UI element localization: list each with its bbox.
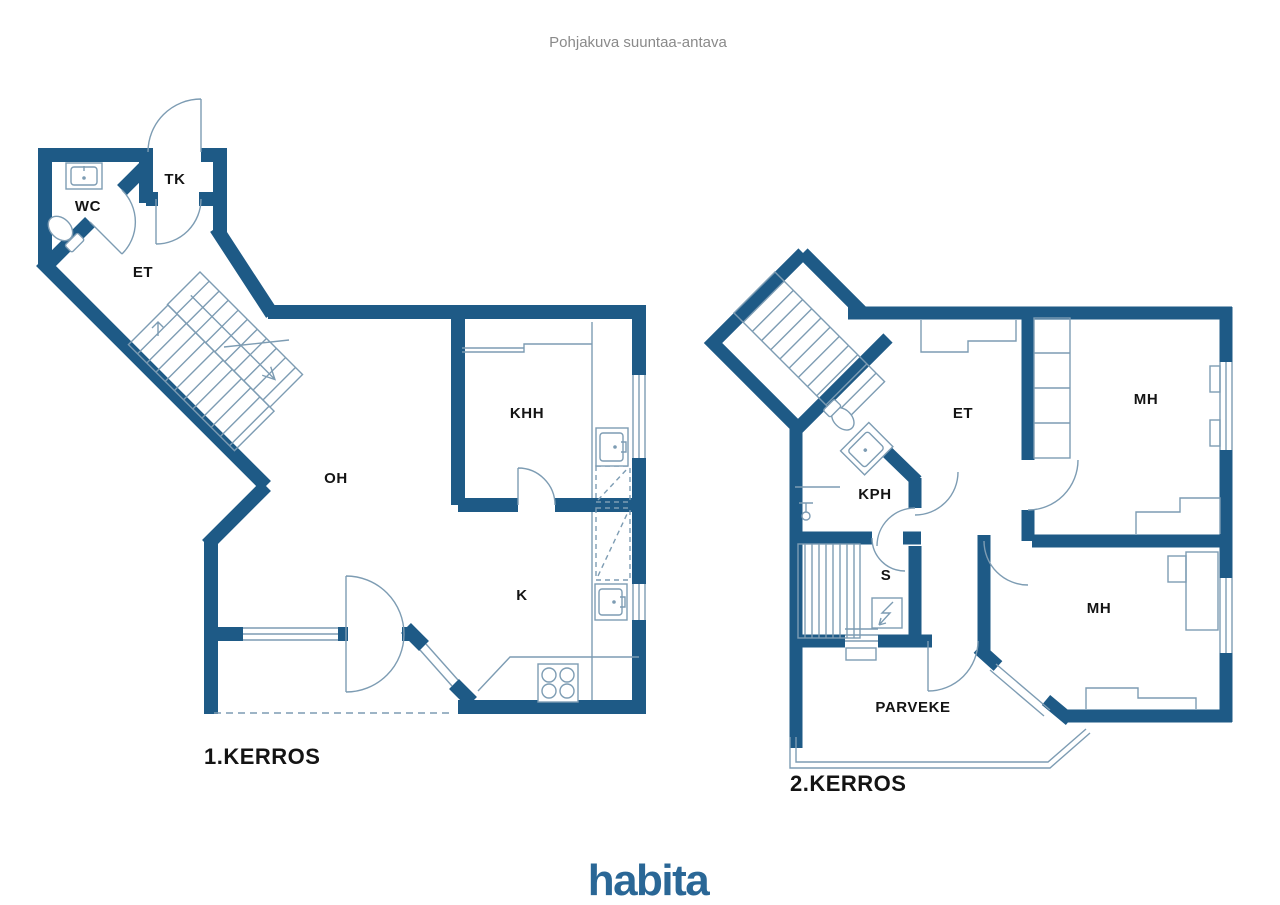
room-label-parveke: PARVEKE (875, 699, 950, 716)
room-label-k: K (516, 587, 527, 604)
mh-top-closet (1034, 318, 1070, 458)
room-label-oh: OH (324, 470, 348, 487)
floor2-stairwell-walls (713, 253, 888, 428)
room-label-mh-top: MH (1134, 391, 1159, 408)
window (1220, 578, 1232, 653)
khh-sink-icon (596, 428, 628, 466)
mh-top-door-arc (1028, 460, 1078, 510)
mh-bottom-closet (1168, 552, 1218, 630)
stairs-floor1 (128, 272, 302, 451)
room-label-khh: KHH (510, 405, 544, 422)
balcony-door-arc (928, 641, 978, 691)
room-label-tk: TK (164, 171, 185, 188)
habita-logo: habita (588, 856, 711, 905)
floorplan-page: Pohjakuva suuntaa-antava (0, 0, 1280, 905)
tk-inner-door-arc (156, 199, 201, 244)
plan-disclaimer-title: Pohjakuva suuntaa-antava (549, 34, 727, 51)
room-label-et-2: ET (953, 405, 973, 422)
floor2-plan: ET MH KPH S MH PARVEKE 2.KERROS (713, 253, 1232, 796)
mh-bottom-door-arc (984, 541, 1028, 585)
floor1-plan: TK WC ET OH KHH K 1.KERROS (38, 99, 646, 769)
floor1-doors (90, 99, 555, 692)
et-shelf (921, 320, 1016, 352)
window (1220, 362, 1232, 450)
window-diagonal (420, 644, 458, 686)
stove-icon (538, 664, 578, 702)
mh-bottom-shelf (1086, 688, 1196, 709)
floor1-label: 1.KERROS (204, 744, 320, 769)
room-label-et-1: ET (133, 264, 153, 281)
floorplan-canvas: Pohjakuva suuntaa-antava (0, 0, 1280, 905)
khh-door-arc (518, 468, 555, 505)
floor1-walls (38, 148, 646, 714)
mh-top-shelf (1136, 498, 1220, 534)
window (633, 584, 645, 620)
sauna-window (845, 629, 878, 641)
sauna-heater-icon (872, 598, 902, 628)
sauna-benches (798, 544, 860, 638)
room-label-s: S (881, 567, 892, 584)
window (243, 628, 338, 640)
window-diagonal (990, 664, 1050, 716)
kitchen-sink-icon (595, 584, 627, 620)
entry-door-arc (148, 99, 201, 152)
balcony-railing (790, 729, 1090, 768)
floor2-doors (872, 460, 1078, 691)
floor1-windows (214, 375, 645, 713)
room-label-mh-bottom: MH (1087, 600, 1112, 617)
room-label-wc: WC (75, 198, 101, 215)
wc-sink-icon (66, 163, 102, 189)
terrace-double-door-arc (346, 576, 404, 692)
floor2-label: 2.KERROS (790, 771, 906, 796)
room-label-kph: KPH (858, 486, 891, 503)
window (633, 375, 645, 458)
